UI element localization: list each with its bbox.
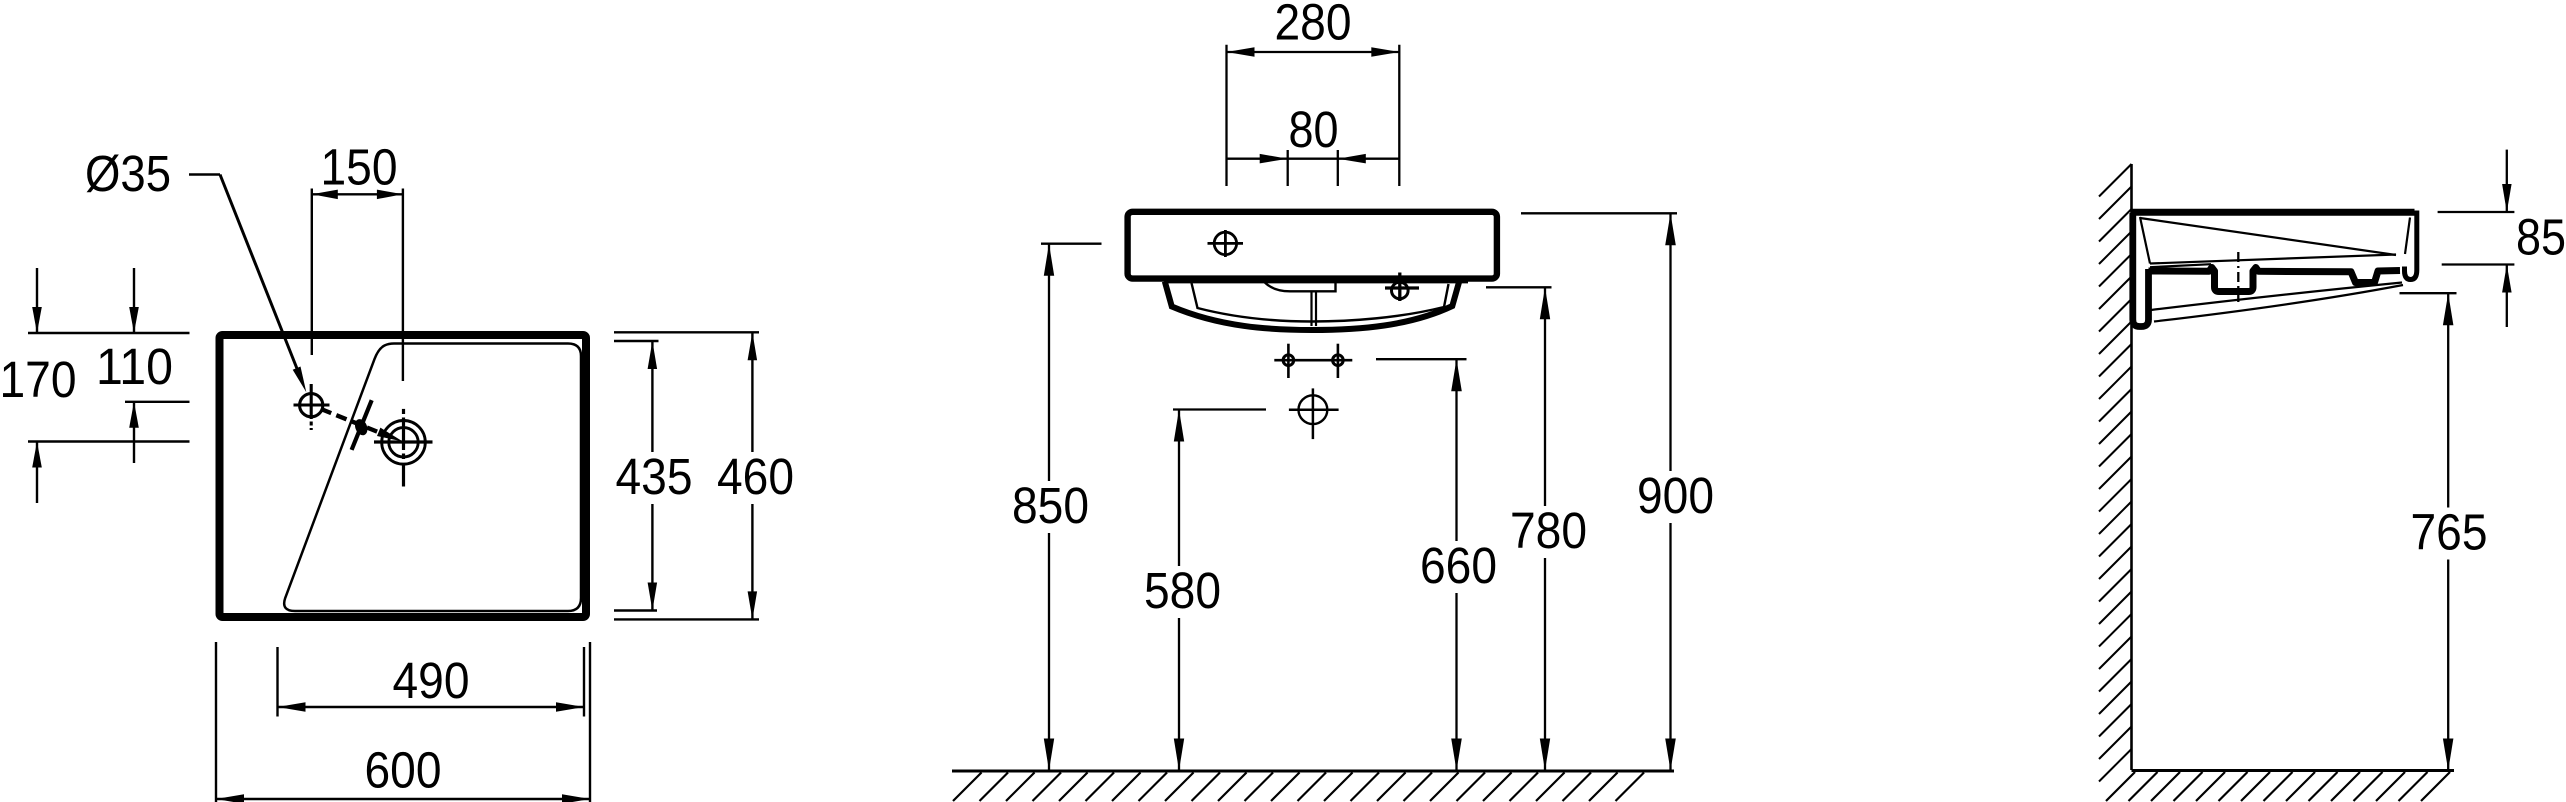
svg-text:170: 170	[0, 351, 77, 408]
svg-text:Ø35: Ø35	[85, 145, 171, 202]
svg-text:150: 150	[321, 139, 398, 196]
svg-text:850: 850	[1012, 477, 1089, 534]
svg-text:460: 460	[717, 448, 794, 505]
svg-text:85: 85	[2516, 209, 2566, 266]
svg-text:280: 280	[1275, 0, 1352, 51]
svg-text:780: 780	[1510, 502, 1587, 559]
svg-text:490: 490	[393, 652, 470, 709]
svg-text:765: 765	[2411, 504, 2488, 561]
svg-text:600: 600	[365, 742, 442, 799]
svg-text:110: 110	[96, 338, 173, 395]
svg-text:660: 660	[1420, 537, 1497, 594]
svg-text:580: 580	[1144, 562, 1221, 619]
svg-text:900: 900	[1637, 467, 1714, 524]
svg-text:435: 435	[616, 448, 693, 505]
svg-text:80: 80	[1289, 101, 1339, 158]
